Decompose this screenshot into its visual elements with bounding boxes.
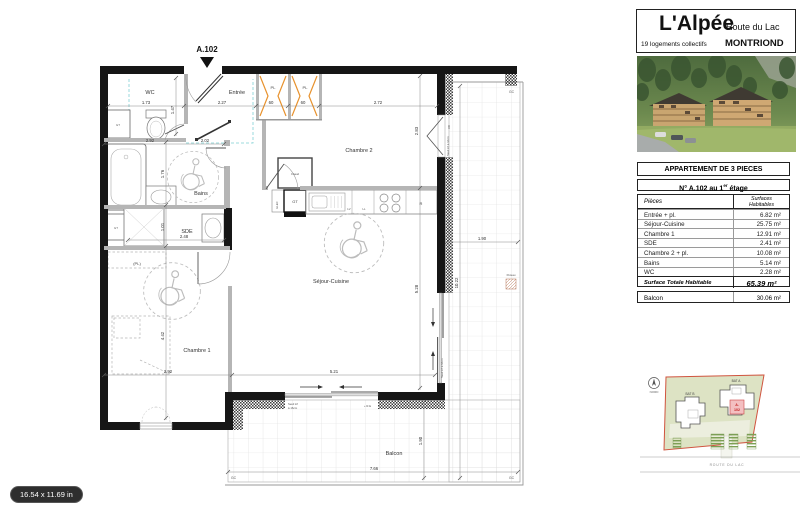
room-label-chambre2: Chambre 2: [345, 148, 372, 154]
dim-1-47: 1.47: [170, 105, 175, 114]
table-title: APPARTEMENT DE 3 PIECES: [637, 162, 790, 176]
dim-7-66: 7.66: [370, 466, 379, 471]
road-label: ROUTE DU LAC: [710, 463, 745, 467]
project-street: Route du Lac: [726, 22, 780, 32]
label-seuil-2: Seuil inf à 16cm: [446, 135, 450, 156]
room-label-bains: Bains: [194, 191, 208, 197]
page: { "page": { "size_badge": "16.54 x 11.69…: [0, 0, 800, 515]
north-compass-icon: [649, 378, 660, 389]
balcon-row: Balcon 30.06 m²: [637, 291, 790, 303]
table-subtitle-post: étage: [728, 185, 748, 192]
table-header-row: Pièces SurfacesHabitables: [638, 195, 789, 209]
total-value: 65.39 m²: [733, 277, 789, 288]
side-panel: L'Alpée Route du Lac 19 logements collec…: [636, 0, 800, 515]
room-label-sejour: Séjour-Cuisine: [313, 279, 349, 285]
label-seuil-1b: à 16cm: [288, 406, 298, 410]
label-chaud: Chaud: [291, 172, 300, 176]
label-gc-1: GC: [231, 476, 237, 480]
row-label: Chambre 2 + pl.: [638, 248, 733, 257]
label-pl-chambre1: (PL): [133, 261, 141, 266]
label-gt3: GT: [292, 199, 298, 204]
bathtub: [106, 144, 146, 210]
floor-plan: A.102 WC Entrée PL PL Chambre 2 Bains SD…: [0, 0, 636, 515]
dim-2-92b: 2.92: [164, 369, 173, 374]
room-label-wc: WC: [145, 90, 154, 96]
table-row: WC2.28 m²: [638, 267, 789, 277]
row-value: 5.14 m²: [733, 258, 789, 267]
dim-2-72: 2.72: [374, 100, 383, 105]
balcon-label: Balcon: [638, 292, 733, 302]
title-block: L'Alpée Route du Lac 19 logements collec…: [636, 9, 796, 53]
project-name: L'Alpée: [659, 12, 734, 36]
room-label-chambre1: Chambre 1: [183, 348, 210, 354]
unit-label: A.102: [196, 45, 218, 54]
room-label-pl2: PL: [303, 85, 309, 90]
building-photo: [637, 56, 796, 152]
row-value: 2.28 m²: [733, 268, 789, 277]
col-header-surfaces-2: Habitables: [734, 203, 789, 209]
label-ll: LL: [362, 207, 366, 211]
label-gc-2: GC: [509, 476, 515, 480]
dim-1-90a: 1.90: [478, 236, 487, 241]
unit-a-label: A.: [735, 403, 739, 407]
table-row: Chambre 112.91 m²: [638, 228, 789, 238]
row-label: SDE: [638, 239, 733, 248]
label-vr: VR: [447, 125, 451, 129]
poteau-column: [506, 279, 516, 289]
table-row: Chambre 2 + pl.10.08 m²: [638, 247, 789, 257]
table-row: Séjour-Cuisine25.75 m²: [638, 219, 789, 229]
table-subtitle-pre: N° A.102 au 1: [679, 185, 723, 192]
label-lv: LV: [347, 207, 350, 211]
row-label: WC: [638, 268, 733, 277]
entry-arrow: [200, 57, 214, 68]
row-label: Entrée + pl.: [638, 210, 733, 219]
col-header-pieces: Pièces: [638, 195, 733, 208]
dim-60a: 60: [269, 100, 274, 105]
bed-dashed: [112, 316, 170, 374]
bains-basin: [146, 186, 176, 208]
wheelchair-symbol-chambre1: [144, 263, 201, 320]
project-city: MONTRIOND: [725, 38, 784, 49]
room-label-entree: Entrée: [229, 90, 245, 96]
wheelchair-symbol-sejour: [324, 213, 383, 272]
dim-5-21: 5.21: [330, 369, 339, 374]
table-total-row: Surface Totale Habitable 65.39 m²: [638, 276, 789, 288]
balcony: [225, 82, 523, 485]
label-gt2: GT: [114, 226, 118, 230]
label-seuil-3: Seuil inf à 16cm: [440, 357, 444, 378]
dim-1-73: 1.73: [142, 100, 151, 105]
label-re: + R.E: [364, 404, 371, 408]
dim-1-01: 1.01: [160, 222, 165, 231]
room-label-pl1: PL: [271, 85, 277, 90]
label-gc-3: GC: [509, 90, 515, 94]
room-label-balcon: Balcon: [386, 451, 403, 457]
label-gt1: GT: [116, 123, 120, 127]
label-refrig: R: [420, 201, 423, 206]
row-value: 10.08 m²: [733, 248, 789, 257]
table-row: Entrée + pl.6.82 m²: [638, 209, 789, 219]
label-elec: ELEC: [275, 201, 279, 208]
col-header-surfaces: SurfacesHabitables: [733, 195, 789, 208]
balcon-value: 30.06 m²: [733, 292, 789, 302]
table-row: SDE2.41 m²: [638, 238, 789, 248]
unit-num-label: 102: [734, 408, 740, 412]
row-value: 6.82 m²: [733, 210, 789, 219]
north-label: NORD: [650, 390, 660, 394]
surfaces-table: Pièces SurfacesHabitables Entrée + pl.6.…: [637, 194, 790, 287]
dim-5-28: 5.28: [414, 284, 419, 293]
row-label: Bains: [638, 258, 733, 267]
row-value: 25.75 m²: [733, 220, 789, 229]
dim-4-42: 4.42: [160, 331, 165, 340]
project-subtitle: 19 logements collectifs: [641, 41, 707, 48]
total-label: Surface Totale Habitable: [638, 277, 733, 288]
dim-1-90b: 1.90: [418, 436, 423, 445]
bat-b-label: BAT B: [686, 392, 695, 396]
dim-10-22: 10.22: [454, 277, 459, 288]
row-label: Séjour-Cuisine: [638, 220, 733, 229]
row-label: Chambre 1: [638, 229, 733, 238]
dim-2-27: 2.27: [218, 100, 227, 105]
bat-a-label: BAT A: [732, 379, 742, 383]
dim-2-48: 2.48: [180, 234, 189, 239]
dim-60b: 60: [301, 100, 306, 105]
table-subtitle: N° A.102 au 1er étage: [637, 179, 790, 191]
page-size-badge: 16.54 x 11.69 in: [10, 486, 83, 503]
table-row: Bains5.14 m²: [638, 257, 789, 267]
site-plan: NORD BAT B BAT A A. 102 ROUTE DU LAC: [636, 362, 800, 504]
row-value: 2.41 m²: [733, 239, 789, 248]
doors: [140, 74, 445, 429]
dim-2-92a: 2.92: [146, 138, 155, 143]
row-value: 12.91 m²: [733, 229, 789, 238]
label-poteau: Poteau: [507, 273, 516, 277]
dim-1-76: 1.76: [160, 169, 165, 178]
dim-2-02: 2.02: [201, 138, 210, 143]
dim-2-83: 2.83: [414, 126, 419, 135]
